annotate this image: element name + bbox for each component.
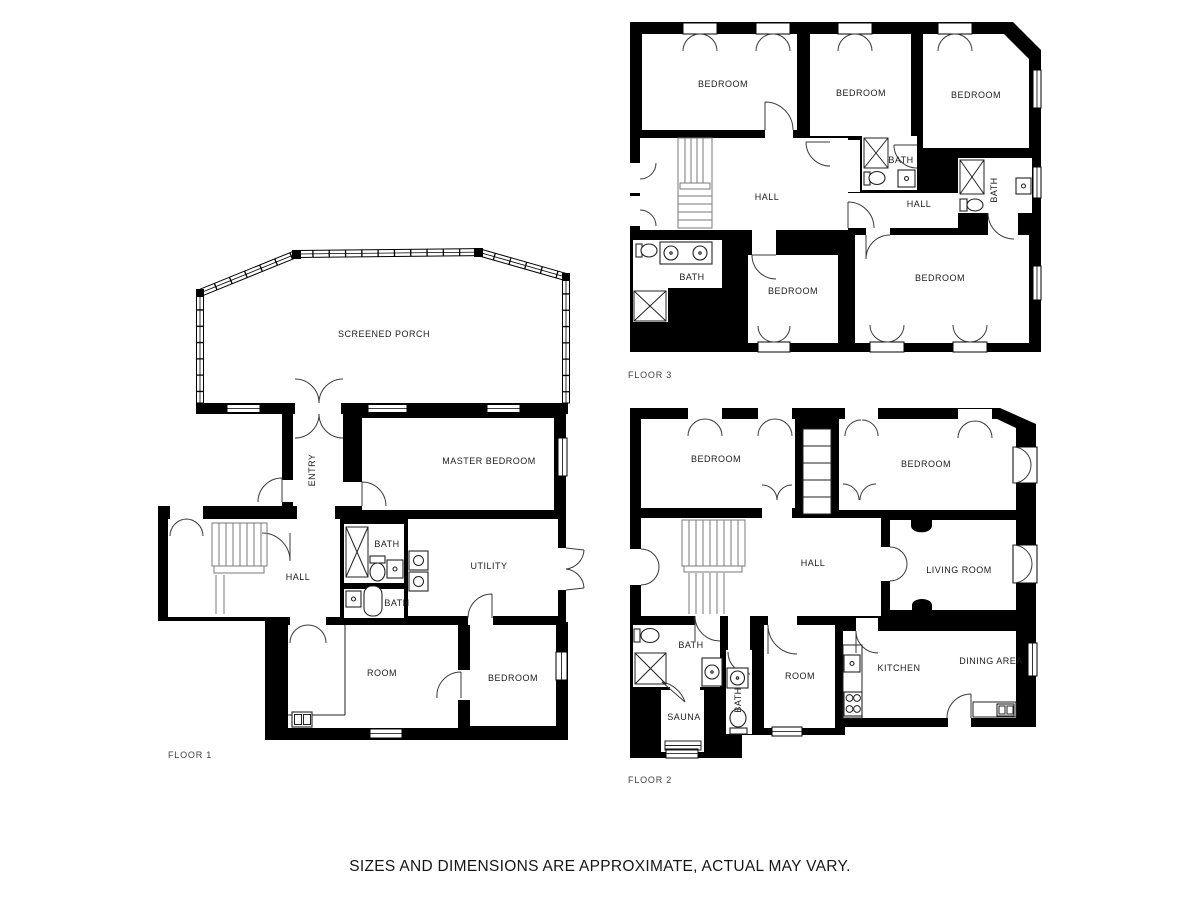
room-label: HALL [286,572,311,582]
floor2-rooms [630,408,1016,752]
room-label: BATH [733,687,743,712]
room-label: ROOM [367,668,397,678]
room-label: LIVING ROOM [926,565,992,575]
room-label: ROOM [785,671,815,681]
floor1-porch [196,248,570,403]
room-label: MASTER BEDROOM [442,456,536,466]
room-label: DINING AREA [959,656,1023,666]
floor3-room-hall2 [848,193,958,228]
room-label: SCREENED PORCH [338,329,430,339]
floor2-label: FLOOR 2 [628,775,672,785]
room-label: BEDROOM [915,273,965,283]
room-label: HALL [907,199,932,209]
floor1-label: FLOOR 1 [168,750,212,760]
room-label: BATH [679,272,704,282]
room-label: UTILITY [470,561,507,571]
room-label: HALL [755,192,780,202]
floor2-closet [803,429,831,514]
floor1-room-entry [293,414,343,506]
room-label: BEDROOM [768,286,818,296]
floorplan-canvas: BEDROOM BEDROOM BEDROOM HALL BATH HALL B… [0,0,1200,900]
floor3-room-bedroom-bm [748,255,838,343]
room-label: BEDROOM [691,454,741,464]
room-label: BATH [888,155,913,165]
room-label: KITCHEN [877,663,920,673]
floor3-room-hall [640,138,848,230]
room-label: BATH [989,177,999,202]
floor3-room-bedroom-tm [810,34,911,136]
floor2-room-kitchen-dining [843,631,1016,718]
floor-1-plan: SCREENED PORCH ENTRY MASTER BEDROOM HALL… [158,248,584,760]
floor-2-plan: BEDROOM BEDROOM HALL LIVING ROOM BATH SA… [628,408,1037,785]
room-label: BEDROOM [836,88,886,98]
room-label: BEDROOM [488,673,538,683]
room-label: HALL [801,558,826,568]
room-label: BEDROOM [951,90,1001,100]
room-label: ENTRY [307,454,317,487]
room-label: BEDROOM [698,79,748,89]
floor2-room-hall [641,518,881,616]
floorplan-page: BEDROOM BEDROOM BEDROOM HALL BATH HALL B… [0,0,1200,900]
room-label: BATH [678,640,703,650]
room-label: BATH [374,539,399,549]
floor3-room-bedroom-br [855,235,1029,343]
floor-3-plan: BEDROOM BEDROOM BEDROOM HALL BATH HALL B… [628,22,1041,380]
room-label: BEDROOM [901,459,951,469]
room-label: BATH [384,598,409,608]
floor3-label: FLOOR 3 [628,370,672,380]
disclaimer-text: SIZES AND DIMENSIONS ARE APPROXIMATE, AC… [0,858,1200,876]
room-label: SAUNA [667,712,701,722]
